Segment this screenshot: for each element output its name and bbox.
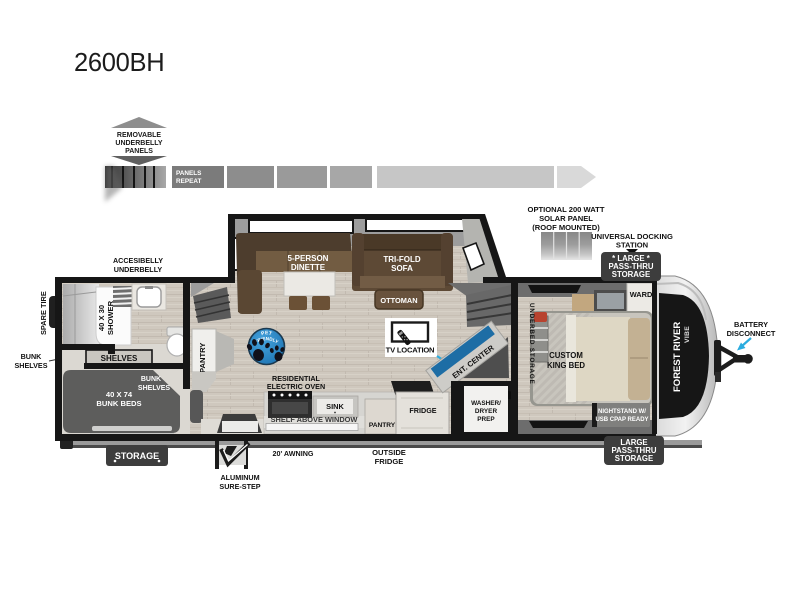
svg-text:SHELVES: SHELVES [14,361,47,370]
svg-text:TV LOCATION: TV LOCATION [386,346,435,355]
svg-text:DISCONNECT: DISCONNECT [727,329,776,338]
svg-text:SURE-STEP: SURE-STEP [219,482,260,491]
svg-text:40 X 74: 40 X 74 [106,390,133,399]
svg-text:ELECTRIC OVEN: ELECTRIC OVEN [267,382,325,391]
svg-text:BATTERY: BATTERY [734,320,768,329]
svg-text:TRI-FOLD: TRI-FOLD [383,255,421,264]
svg-text:OUTSIDE: OUTSIDE [372,448,406,457]
svg-text:20' AWNING: 20' AWNING [273,449,314,458]
svg-text:ALUMINUM: ALUMINUM [220,473,259,482]
svg-text:FRIDGE: FRIDGE [375,457,404,466]
svg-text:40 X 30: 40 X 30 [97,305,106,331]
svg-text:5-PERSON: 5-PERSON [288,254,329,263]
svg-text:DRYER: DRYER [475,408,498,415]
svg-text:KING BED: KING BED [547,361,585,370]
svg-text:WARD: WARD [630,290,653,299]
svg-text:WASHER/: WASHER/ [471,400,501,407]
svg-text:REPEAT: REPEAT [176,178,202,185]
svg-text:PANELS: PANELS [176,170,202,177]
svg-text:UNDERBED STORAGE: UNDERBED STORAGE [528,303,535,385]
svg-text:UNDERBELLY: UNDERBELLY [115,140,163,147]
svg-text:STORAGE: STORAGE [612,270,650,279]
svg-text:BUNK: BUNK [141,376,161,383]
svg-text:STORAGE: STORAGE [115,451,159,461]
svg-text:PANTRY: PANTRY [369,422,396,429]
svg-text:UNDERBELLY: UNDERBELLY [114,265,163,274]
svg-text:BUNK BEDS: BUNK BEDS [96,399,141,408]
svg-text:REMOVABLE: REMOVABLE [117,132,162,139]
svg-text:2600BH: 2600BH [74,49,164,77]
svg-text:CUSTOM: CUSTOM [549,351,583,360]
svg-text:OTTOMAN: OTTOMAN [380,296,417,305]
svg-text:SHELF ABOVE WINDOW: SHELF ABOVE WINDOW [271,415,358,424]
svg-text:BUNK: BUNK [21,352,43,361]
svg-text:FOREST RIVER: FOREST RIVER [672,322,683,392]
svg-text:SHELVES: SHELVES [138,385,170,392]
svg-text:SOLAR PANEL: SOLAR PANEL [539,214,593,223]
svg-text:USB CPAP READY: USB CPAP READY [595,417,648,423]
svg-text:SPARE TIRE: SPARE TIRE [39,291,48,335]
svg-text:SHELVES: SHELVES [101,354,138,363]
svg-text:STORAGE: STORAGE [615,454,653,463]
svg-text:VIBE: VIBE [684,326,691,343]
svg-text:SINK: SINK [326,402,344,411]
svg-text:FRIDGE: FRIDGE [409,406,436,415]
svg-text:PANELS: PANELS [125,148,153,155]
svg-text:(ROOF MOUNTED): (ROOF MOUNTED) [532,223,600,232]
svg-text:PREP: PREP [477,416,495,423]
svg-text:DINETTE: DINETTE [291,263,326,272]
svg-text:PET: PET [261,330,273,337]
svg-text:ACCESIBELLY: ACCESIBELLY [113,256,163,265]
svg-text:OPTIONAL 200 WATT: OPTIONAL 200 WATT [528,205,605,214]
svg-text:STATION: STATION [616,241,648,250]
svg-text:PANTRY: PANTRY [198,343,207,373]
svg-text:NIGHTSTAND W/: NIGHTSTAND W/ [598,409,646,415]
svg-text:SOFA: SOFA [391,264,413,273]
